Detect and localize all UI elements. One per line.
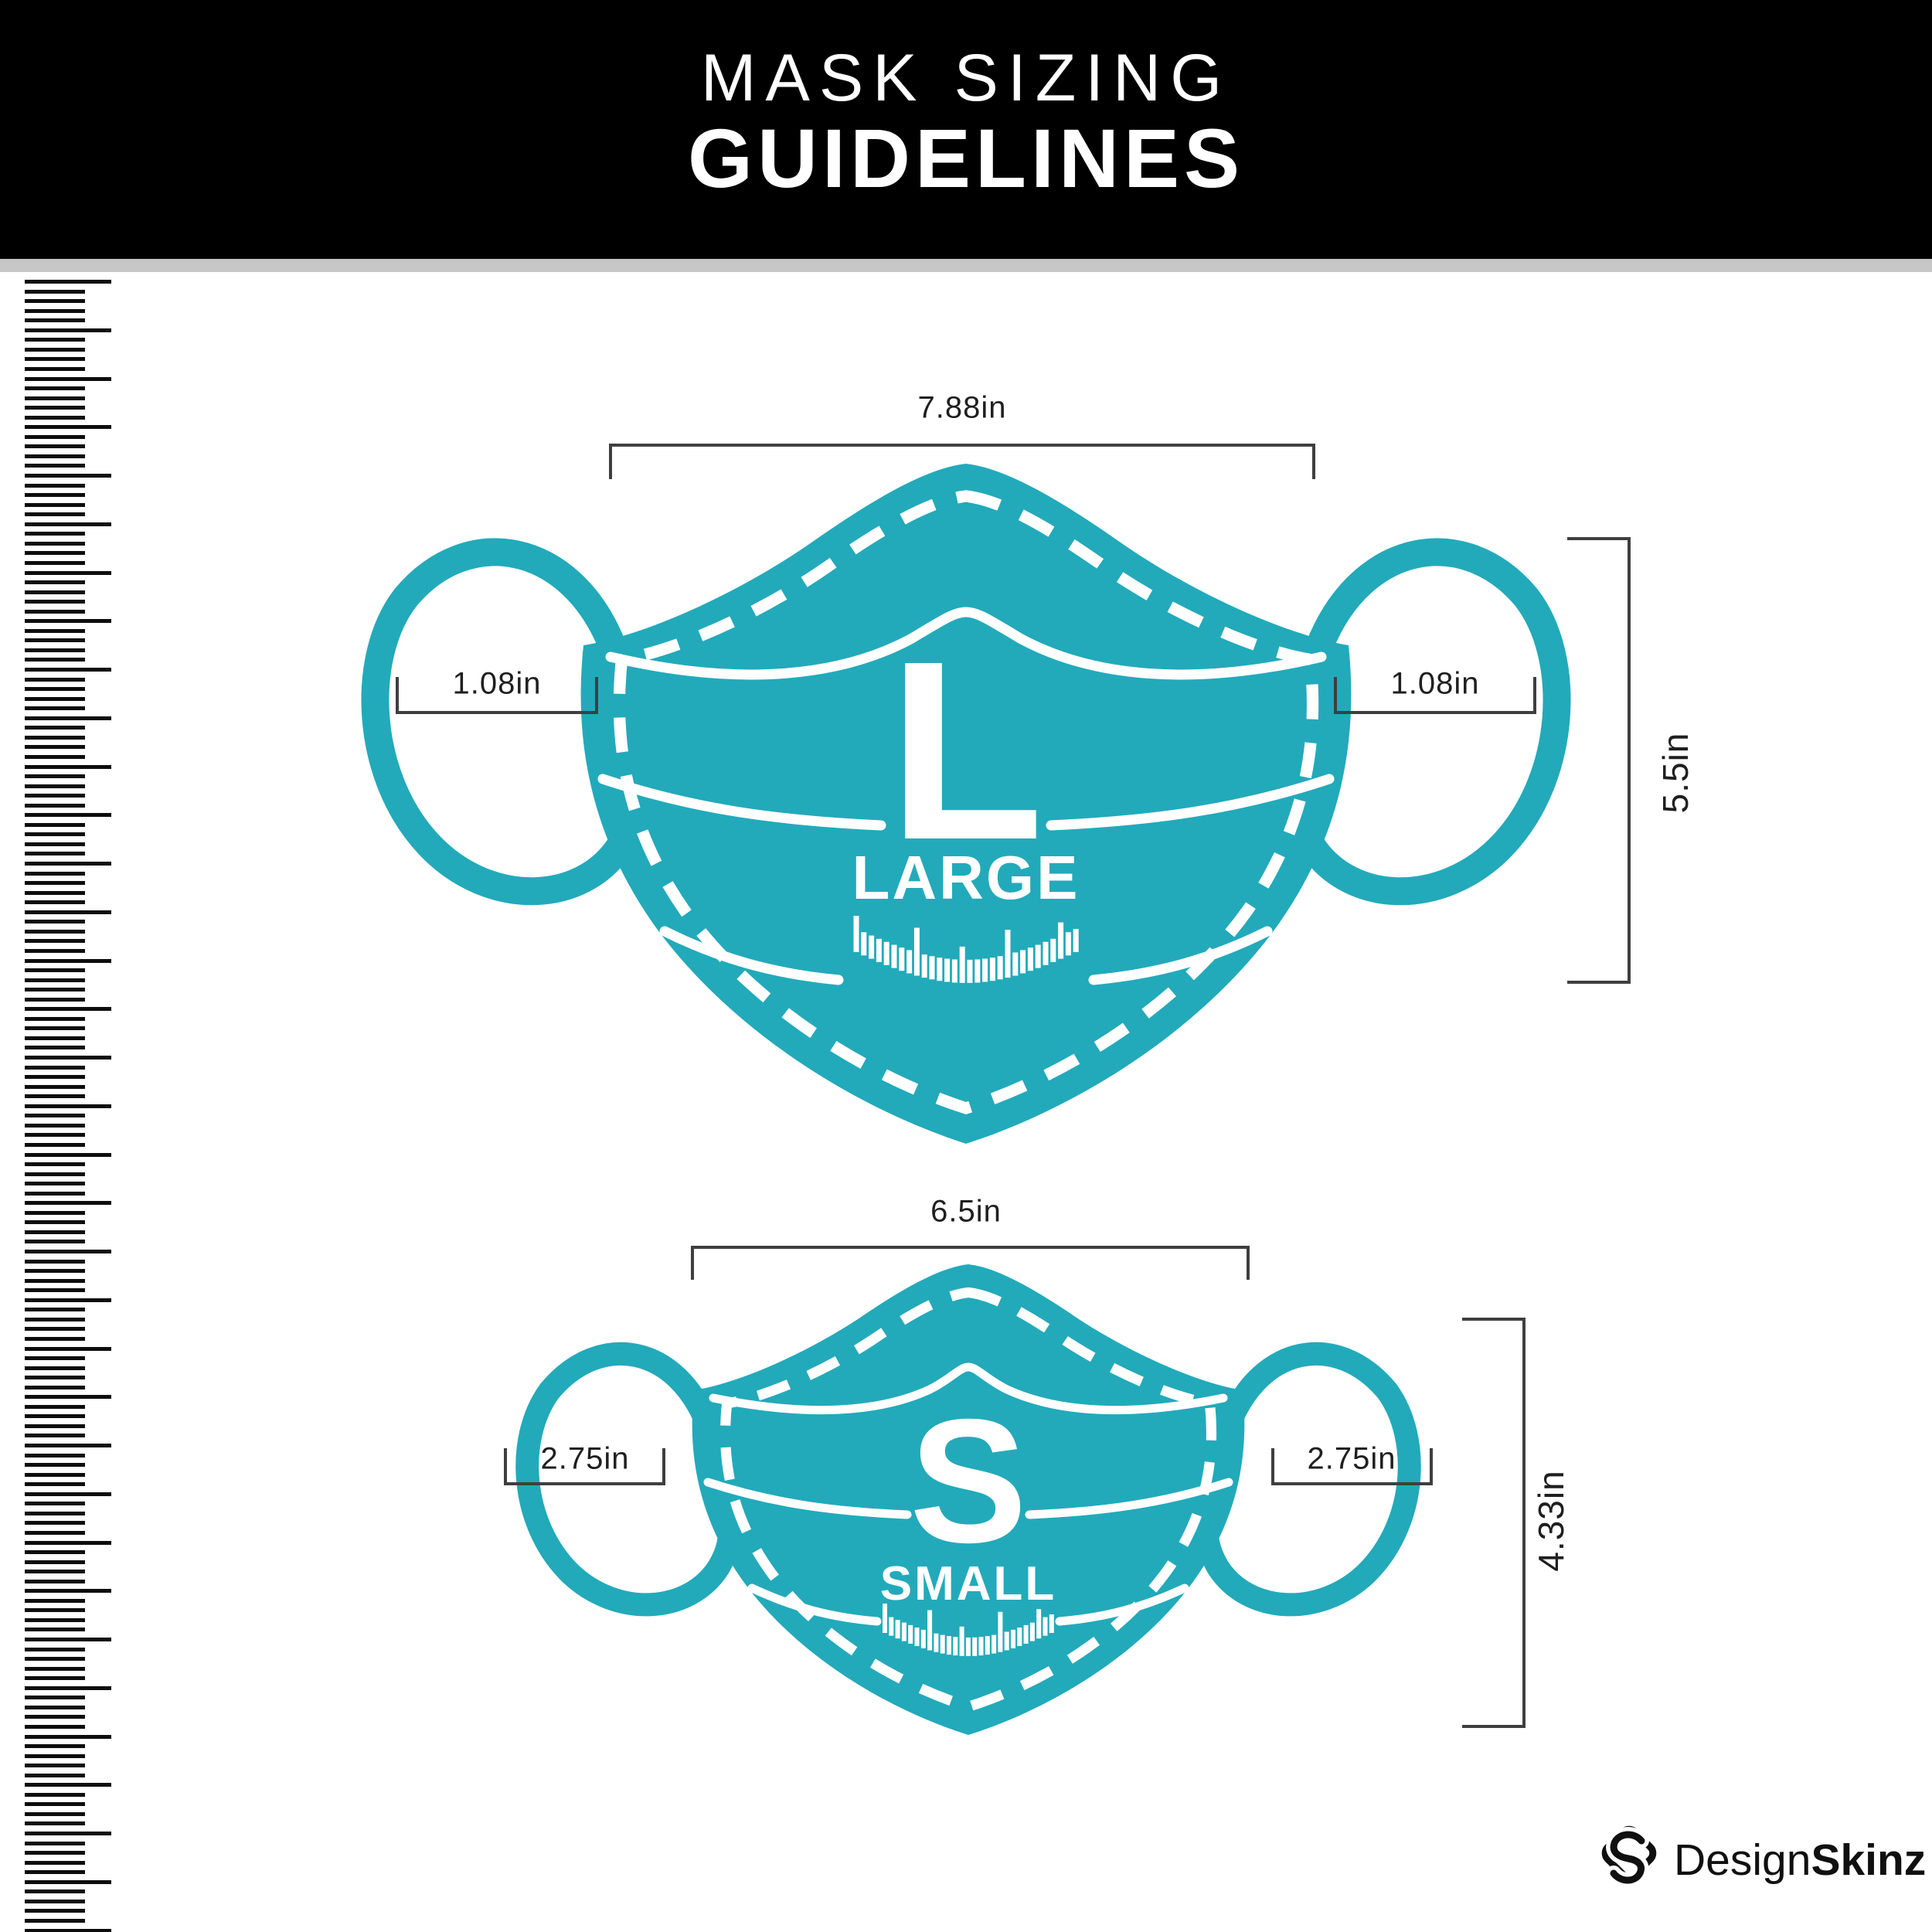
small-ear-bracket-right-tick — [1430, 1448, 1433, 1485]
large-height-bracket-cap-bottom — [1567, 981, 1631, 984]
ruler-minor-tick — [25, 1220, 85, 1224]
ruler-minor-tick — [25, 939, 85, 943]
ruler-minor-tick — [25, 658, 85, 662]
ruler-minor-tick — [25, 629, 85, 633]
small-ear-bracket-right-line — [1271, 1482, 1433, 1485]
large-width-bracket-tick-left — [609, 444, 612, 479]
ruler-minor-tick — [25, 638, 85, 642]
ruler-minor-tick — [25, 600, 85, 604]
ruler-minor-tick — [25, 852, 85, 855]
ruler-minor-tick — [25, 1851, 85, 1855]
ruler-minor-tick — [25, 1230, 85, 1234]
large-ear-bracket-right-line — [1334, 711, 1536, 714]
header-banner: MASK SIZING GUIDELINES — [0, 0, 1932, 259]
ruler-minor-tick — [25, 1774, 85, 1777]
large-ear-bracket-left-line — [396, 711, 598, 714]
ruler-minor-tick — [25, 1793, 85, 1797]
ruler-minor-tick — [25, 648, 85, 652]
ruler-major-tick — [25, 813, 111, 817]
small-height-bracket-cap-top — [1462, 1318, 1526, 1321]
ruler-minor-tick — [25, 532, 85, 536]
ruler-major-tick — [25, 1153, 111, 1157]
ruler-minor-tick — [25, 542, 85, 546]
ruler-major-tick — [25, 1929, 111, 1932]
ruler-major-tick — [25, 1395, 111, 1399]
ruler-minor-tick — [25, 794, 85, 798]
ruler-minor-tick — [25, 1754, 85, 1758]
ruler-major-tick — [25, 1541, 111, 1545]
ruler-major-tick — [25, 1056, 111, 1060]
ruler-minor-tick — [25, 1356, 85, 1360]
ruler-minor-tick — [25, 1405, 85, 1409]
ruler-minor-tick — [25, 1026, 85, 1030]
ruler-minor-tick — [25, 1570, 85, 1573]
small-width-bracket-line — [691, 1246, 1250, 1249]
ruler-minor-tick — [25, 1133, 85, 1137]
ruler-minor-tick — [25, 1017, 85, 1021]
small-width-bracket-tick-left — [691, 1246, 694, 1280]
ruler-major-tick — [25, 1589, 111, 1593]
ruler-major-tick — [25, 1347, 111, 1351]
ruler-minor-tick — [25, 1648, 85, 1651]
ruler-minor-tick — [25, 1366, 85, 1370]
ruler-minor-tick — [25, 1094, 85, 1098]
ruler-minor-tick — [25, 687, 85, 691]
small-ear-bracket-right-tick — [1271, 1448, 1274, 1485]
ruler-minor-tick — [25, 1696, 85, 1699]
ruler-major-tick — [25, 571, 111, 575]
ruler-major-tick — [25, 619, 111, 623]
ruler-major-tick — [25, 280, 111, 284]
small-ear-width-label-left: 2.75in — [541, 1442, 630, 1477]
small-ear-bracket-left-tick — [504, 1448, 507, 1485]
ruler-minor-tick — [25, 823, 85, 827]
ruler-minor-tick — [25, 1376, 85, 1379]
ruler-minor-tick — [25, 968, 85, 972]
ruler-major-tick — [25, 522, 111, 526]
ruler-minor-tick — [25, 1124, 85, 1128]
ruler-minor-tick — [25, 1260, 85, 1264]
ruler-minor-tick — [25, 920, 85, 923]
large-mask-illustration: L LARGE — [340, 433, 1592, 1159]
page-title: MASK SIZING — [0, 40, 1932, 117]
ruler-major-tick — [25, 1638, 111, 1641]
ruler-minor-tick — [25, 551, 85, 555]
ruler-minor-tick — [25, 1046, 85, 1049]
ruler-minor-tick — [25, 1192, 85, 1196]
ruler-minor-tick — [25, 1628, 85, 1631]
ruler-minor-tick — [25, 678, 85, 682]
ruler-minor-tick — [25, 842, 85, 846]
large-width-bracket-line — [609, 444, 1315, 447]
ruler-minor-tick — [25, 1861, 85, 1865]
ruler-minor-tick — [25, 1318, 85, 1321]
small-ear-width-label-right: 2.75in — [1308, 1442, 1396, 1477]
ruler-minor-tick — [25, 435, 85, 439]
ruler-minor-tick — [25, 1725, 85, 1729]
ruler-minor-tick — [25, 1279, 85, 1283]
ruler-minor-tick — [25, 755, 85, 759]
large-height-bracket-cap-top — [1567, 537, 1631, 540]
large-size-name: LARGE — [852, 843, 1080, 912]
ruler-major-tick — [25, 474, 111, 478]
ruler-minor-tick — [25, 1812, 85, 1816]
ruler-minor-tick — [25, 464, 85, 468]
brand-wordmark: DesignSkinz — [1674, 1835, 1926, 1886]
ruler-minor-tick — [25, 978, 85, 982]
ruler-minor-tick — [25, 1424, 85, 1428]
large-ear-width-label-left: 1.08in — [453, 667, 542, 702]
ruler-major-tick — [25, 668, 111, 672]
ruler-minor-tick — [25, 1172, 85, 1176]
ruler-minor-tick — [25, 1512, 85, 1515]
ruler-minor-tick — [25, 1842, 85, 1845]
ruler-minor-tick — [25, 804, 85, 808]
large-ear-bracket-left-tick — [595, 677, 598, 714]
ruler-minor-tick — [25, 416, 85, 420]
ruler-major-tick — [25, 1104, 111, 1108]
ruler-minor-tick — [25, 1308, 85, 1311]
ruler-minor-tick — [25, 1454, 85, 1458]
ruler-minor-tick — [25, 503, 85, 507]
ruler-minor-tick — [25, 1715, 85, 1719]
ruler-major-tick — [25, 1298, 111, 1302]
brand-name-regular: Design — [1674, 1835, 1811, 1885]
brand-name-bold: Skinz — [1811, 1835, 1926, 1885]
ruler-minor-tick — [25, 610, 85, 614]
ruler-minor-tick — [25, 784, 85, 788]
designskinz-diamond-s-icon — [1594, 1815, 1665, 1892]
ruler-minor-tick — [25, 745, 85, 749]
ruler-major-tick — [25, 765, 111, 769]
small-mask-illustration: S SMALL — [502, 1236, 1445, 1777]
large-width-bracket-tick-right — [1312, 444, 1315, 479]
ruler-major-tick — [25, 910, 111, 914]
ruler-minor-tick — [25, 1744, 85, 1748]
small-size-name: SMALL — [880, 1557, 1057, 1611]
ruler-minor-tick — [25, 299, 85, 303]
ruler-minor-tick — [25, 736, 85, 740]
ruler-minor-tick — [25, 1434, 85, 1437]
ruler-minor-tick — [25, 726, 85, 730]
large-ear-bracket-right-tick — [1533, 677, 1536, 714]
ruler-minor-tick — [25, 900, 85, 904]
ruler-major-tick — [25, 716, 111, 720]
ruler-minor-tick — [25, 1269, 85, 1273]
ruler-minor-tick — [25, 1143, 85, 1147]
small-size-letter: S — [910, 1383, 1027, 1580]
ruler-major-tick — [25, 959, 111, 963]
ruler-minor-tick — [25, 357, 85, 361]
ruler-minor-tick — [25, 1909, 85, 1913]
ruler-minor-tick — [25, 590, 85, 594]
ruler-major-tick — [25, 1201, 111, 1205]
small-ear-bracket-left-tick — [662, 1448, 665, 1485]
ruler-major-tick — [25, 425, 111, 429]
small-ear-bracket-left-line — [504, 1482, 665, 1485]
ruler-major-tick — [25, 377, 111, 381]
ruler-major-tick — [25, 1250, 111, 1253]
ruler-minor-tick — [25, 493, 85, 497]
ruler-minor-tick — [25, 1114, 85, 1117]
large-height-label: 5.5in — [1655, 733, 1696, 814]
small-height-bracket-cap-bottom — [1462, 1725, 1526, 1728]
ruler-minor-tick — [25, 338, 85, 342]
vertical-ruler-icon — [25, 280, 113, 1932]
large-width-label: 7.88in — [918, 391, 1007, 426]
ruler-minor-tick — [25, 1473, 85, 1477]
infographic-canvas: MASK SIZING GUIDELINES L LARGE 7.88in 1.… — [0, 0, 1932, 1932]
ruler-minor-tick — [25, 1919, 85, 1923]
ruler-minor-tick — [25, 1463, 85, 1467]
ruler-minor-tick — [25, 988, 85, 992]
ruler-minor-tick — [25, 1889, 85, 1893]
ruler-minor-tick — [25, 1482, 85, 1486]
ruler-major-tick — [25, 1832, 111, 1835]
ruler-minor-tick — [25, 872, 85, 876]
ruler-minor-tick — [25, 318, 85, 322]
ruler-minor-tick — [25, 290, 85, 294]
ruler-minor-tick — [25, 1821, 85, 1825]
header-divider — [0, 259, 1932, 272]
small-width-bracket-tick-right — [1247, 1246, 1250, 1280]
ruler-minor-tick — [25, 1337, 85, 1341]
ruler-minor-tick — [25, 386, 85, 390]
large-ear-width-label-right: 1.08in — [1391, 667, 1480, 702]
ruler-minor-tick — [25, 444, 85, 448]
ruler-minor-tick — [25, 706, 85, 710]
ruler-minor-tick — [25, 949, 85, 953]
ruler-minor-tick — [25, 1870, 85, 1874]
ruler-major-tick — [25, 1444, 111, 1447]
ruler-minor-tick — [25, 1386, 85, 1389]
ruler-minor-tick — [25, 1066, 85, 1070]
ruler-minor-tick — [25, 891, 85, 895]
ruler-minor-tick — [25, 561, 85, 565]
ruler-major-tick — [25, 1492, 111, 1496]
large-height-bracket-line — [1628, 537, 1631, 984]
ruler-minor-tick — [25, 367, 85, 371]
ruler-minor-tick — [25, 832, 85, 836]
ruler-minor-tick — [25, 1657, 85, 1661]
ruler-minor-tick — [25, 512, 85, 516]
ruler-minor-tick — [25, 454, 85, 458]
ruler-minor-tick — [25, 1667, 85, 1671]
ruler-minor-tick — [25, 1550, 85, 1554]
ruler-minor-tick — [25, 1618, 85, 1622]
small-height-label: 4.33in — [1530, 1470, 1572, 1571]
ruler-minor-tick — [25, 774, 85, 778]
ruler-minor-tick — [25, 1162, 85, 1166]
ruler-minor-tick — [25, 1240, 85, 1243]
ruler-minor-tick — [25, 396, 85, 400]
ruler-minor-tick — [25, 1900, 85, 1903]
ruler-major-tick — [25, 328, 111, 332]
ruler-minor-tick — [25, 1608, 85, 1612]
ruler-minor-tick — [25, 1706, 85, 1709]
ruler-minor-tick — [25, 1802, 85, 1806]
ruler-minor-tick — [25, 1521, 85, 1525]
ruler-minor-tick — [25, 406, 85, 410]
small-width-label: 6.5in — [930, 1195, 1002, 1230]
ruler-major-tick — [25, 1735, 111, 1739]
ruler-major-tick — [25, 1686, 111, 1690]
ruler-minor-tick — [25, 1075, 85, 1079]
ruler-minor-tick — [25, 1036, 85, 1040]
ruler-minor-tick — [25, 1531, 85, 1535]
ruler-minor-tick — [25, 1182, 85, 1185]
page-subtitle: GUIDELINES — [0, 110, 1932, 206]
ruler-minor-tick — [25, 484, 85, 488]
ruler-minor-tick — [25, 1599, 85, 1603]
ruler-minor-tick — [25, 309, 85, 313]
ruler-major-tick — [25, 1880, 111, 1884]
ruler-minor-tick — [25, 1764, 85, 1767]
ruler-minor-tick — [25, 930, 85, 934]
ruler-minor-tick — [25, 1085, 85, 1089]
ruler-minor-tick — [25, 348, 85, 352]
ruler-minor-tick — [25, 881, 85, 885]
ruler-minor-tick — [25, 1560, 85, 1564]
ruler-minor-tick — [25, 1580, 85, 1583]
ruler-minor-tick — [25, 1502, 85, 1505]
ruler-minor-tick — [25, 1211, 85, 1215]
ruler-minor-tick — [25, 998, 85, 1002]
ruler-major-tick — [25, 1007, 111, 1011]
ruler-minor-tick — [25, 1327, 85, 1331]
ruler-minor-tick — [25, 580, 85, 584]
small-height-bracket-line — [1522, 1318, 1526, 1728]
ruler-minor-tick — [25, 1288, 85, 1292]
ruler-major-tick — [25, 862, 111, 866]
large-ear-bracket-left-tick — [396, 677, 399, 714]
ruler-minor-tick — [25, 1414, 85, 1418]
ruler-minor-tick — [25, 697, 85, 701]
large-ear-bracket-right-tick — [1334, 677, 1337, 714]
ruler-minor-tick — [25, 1676, 85, 1680]
ruler-major-tick — [25, 1783, 111, 1787]
